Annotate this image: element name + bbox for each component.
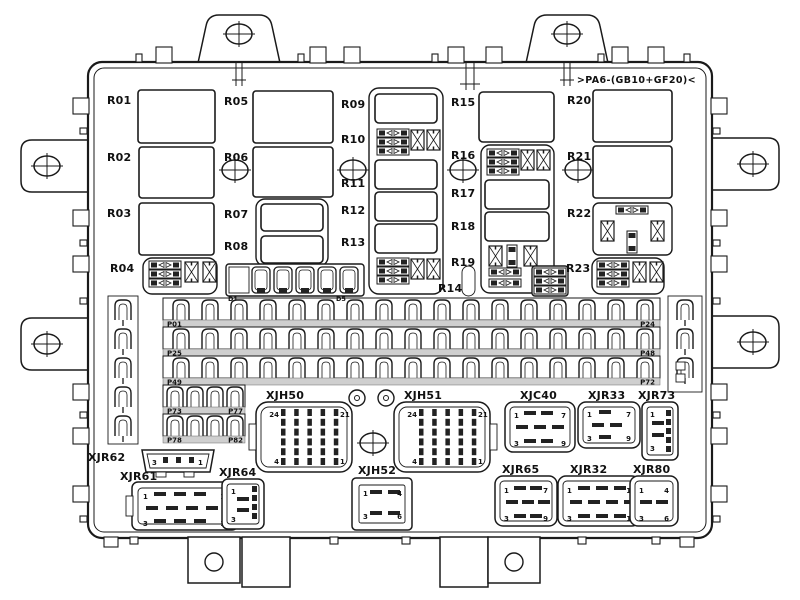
hole-icon — [349, 390, 365, 406]
relay-label: R18 — [451, 220, 475, 233]
pin-number: 1 — [363, 490, 368, 498]
minifuse-stack — [149, 261, 181, 287]
pin-number: 3 — [363, 513, 368, 521]
relay-label: R21 — [567, 150, 591, 163]
relay-r17 — [485, 180, 549, 209]
relay-r21 — [593, 146, 672, 198]
relay-label: R03 — [107, 207, 131, 220]
pin-number: 1 — [504, 487, 509, 495]
connector-label: XJH52 — [358, 464, 396, 477]
relay-r12 — [375, 192, 437, 221]
fuse-group-r04 — [143, 258, 217, 294]
diode-sockets — [252, 267, 358, 293]
hole-icon — [378, 390, 394, 406]
edge-notch — [104, 537, 118, 547]
relay-r06 — [253, 147, 333, 197]
minifuse-stack — [377, 129, 409, 155]
pin-number: 1 — [639, 487, 644, 495]
right-fuse-column-fuses — [677, 300, 693, 384]
pin-number: 1 — [567, 487, 572, 495]
pin-number: 3 — [152, 459, 157, 467]
relay-label: R04 — [110, 262, 135, 275]
connector-label: XJC40 — [520, 389, 557, 402]
pin-number: 1 — [514, 412, 519, 420]
relay-label: R08 — [224, 240, 248, 253]
fuse-row-label: P78 — [167, 437, 182, 445]
fuse-row-label: P72 — [640, 379, 655, 387]
relay-r01 — [138, 90, 215, 143]
relay-r07 — [261, 204, 323, 231]
pin-number: 1 — [587, 411, 592, 419]
pin-number: 9 — [626, 435, 631, 443]
bottom-tab — [440, 537, 488, 587]
pin-number: 3 — [504, 515, 509, 523]
connector-label: XJR61 — [120, 470, 157, 483]
relay-r18 — [485, 212, 549, 241]
relay-label: R16 — [451, 149, 476, 162]
relay-r08 — [261, 236, 323, 263]
pin-number: 6 — [664, 515, 669, 523]
pin-number: 4 — [664, 487, 669, 495]
connector-label: XJR64 — [219, 466, 256, 479]
pin-number: 9 — [543, 515, 548, 523]
relay-label: R22 — [567, 207, 591, 220]
relay-label: R07 — [224, 208, 248, 221]
relay-label: R20 — [567, 94, 592, 107]
relay-r20 — [593, 90, 672, 142]
pin-number: 3 — [143, 520, 148, 528]
minifuse-stack — [377, 258, 409, 284]
relay-label: R09 — [341, 98, 365, 111]
pin-number: 3 — [650, 445, 655, 453]
pin-number: 21 — [478, 411, 488, 419]
pin-number: 4 — [274, 458, 279, 466]
part-marking: >PA6-(GB10+GF20)< — [577, 75, 696, 86]
relay-label: R13 — [341, 236, 365, 249]
tab-hole-icon — [505, 553, 523, 571]
connector-label: XJR73 — [638, 389, 675, 402]
edge-notch — [680, 537, 694, 547]
pin-number: 1 — [231, 488, 236, 496]
minifuse-stack — [487, 149, 519, 175]
relay-socket — [532, 266, 568, 296]
relay-label: R11 — [341, 177, 365, 190]
fuse-group-r23 — [592, 258, 664, 294]
pin-number: 1 — [340, 458, 345, 466]
relay-label: R01 — [107, 94, 131, 107]
relay-r15 — [479, 92, 554, 142]
pin-number: 1 — [143, 493, 148, 501]
connector-label: XJR33 — [588, 389, 625, 402]
pin-number: 9 — [561, 440, 566, 448]
pin-number: 3 — [639, 515, 644, 523]
pin-number: 24 — [407, 411, 417, 419]
pin-number: 4 — [397, 490, 402, 498]
diode-label: D5 — [336, 295, 346, 303]
relay-label: R02 — [107, 151, 131, 164]
relay-label: R15 — [451, 96, 475, 109]
connector-label: XJR32 — [570, 463, 607, 476]
pin-number: 7 — [561, 412, 566, 420]
pin-number: 1 — [198, 459, 203, 467]
connector-label: XJR65 — [502, 463, 539, 476]
bottom-tab — [242, 537, 290, 587]
connector-label: XJR62 — [88, 451, 125, 464]
relay-r11 — [375, 160, 437, 189]
relay-r02 — [139, 147, 214, 198]
fuse-group-r22 — [593, 203, 672, 255]
relay-r05 — [253, 91, 333, 143]
connector-label: XJH51 — [404, 389, 442, 402]
minifuse-stack — [597, 261, 629, 287]
connector-label: XJH50 — [266, 389, 304, 402]
relay-label: R23 — [566, 262, 590, 275]
connector-xjr73: XJR73 1 3 — [638, 389, 678, 460]
relay-label: R17 — [451, 187, 475, 200]
relay-label: R05 — [224, 95, 248, 108]
pin-number: 3 — [587, 435, 592, 443]
relay-r13 — [375, 224, 437, 253]
pin-number: 1 — [650, 411, 655, 419]
fuse-box-diagram: >PA6-(GB10+GF20)< R01 R02 R03 R04 R05 R0… — [0, 0, 800, 600]
pin-number: 21 — [340, 411, 350, 419]
relay-label: R10 — [341, 133, 366, 146]
pin-number: 1 — [478, 458, 483, 466]
fuse-box-diagram-page: >PA6-(GB10+GF20)< R01 R02 R03 R04 R05 R0… — [0, 0, 800, 600]
pill-slot — [462, 266, 475, 296]
relay-r09 — [375, 94, 437, 123]
pin-number: 7 — [543, 487, 548, 495]
pin-number: 3 — [567, 515, 572, 523]
relay-r03 — [139, 203, 214, 255]
fuse-row-label: P82 — [228, 437, 243, 445]
bottom-tabs — [104, 537, 694, 587]
tab-hole-icon — [205, 553, 223, 571]
relay-label: R12 — [341, 204, 365, 217]
relay-label: R06 — [224, 151, 249, 164]
pin-number: 24 — [269, 411, 279, 419]
pin-number: 6 — [397, 513, 402, 521]
relay-label: R14 — [438, 282, 463, 295]
connector-label: XJR80 — [633, 463, 670, 476]
pin-number: 3 — [231, 516, 236, 524]
pin-number: 7 — [626, 411, 631, 419]
pin-number: 4 — [412, 458, 417, 466]
pin-number: 3 — [514, 440, 519, 448]
